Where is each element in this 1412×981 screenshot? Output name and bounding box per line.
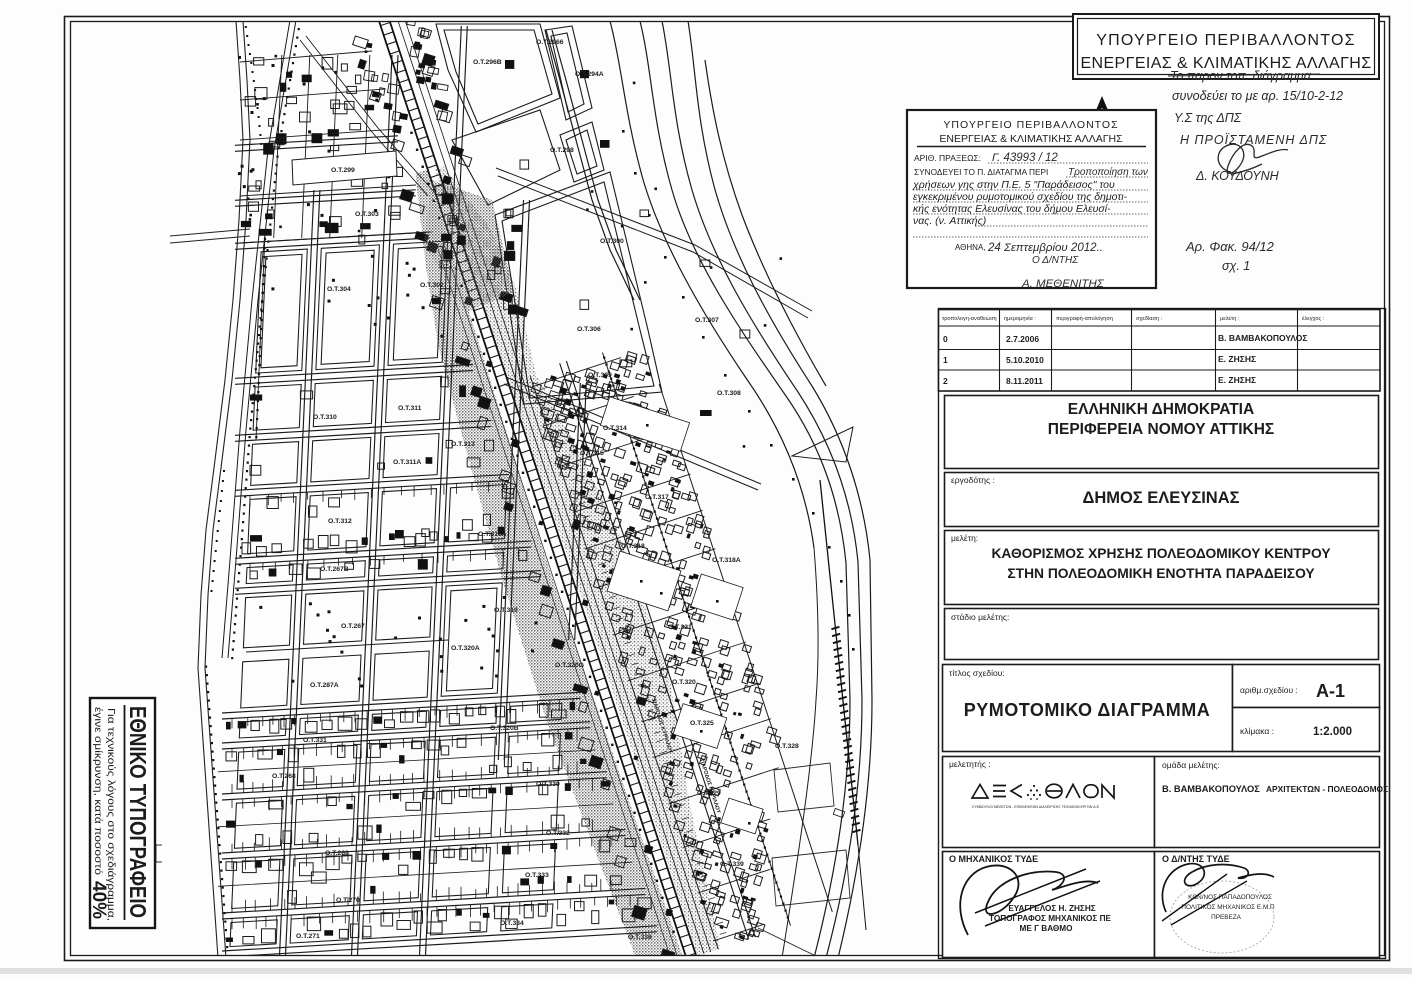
svg-text:40%: 40% [88,881,109,919]
svg-text:ΑΡΧΙΤΕΚΤΩΝ - ΠΟΛΕΟΔΟΜΟΣ: ΑΡΧΙΤΕΚΤΩΝ - ΠΟΛΕΟΔΟΜΟΣ [1266,784,1388,794]
svg-text:O.T.2966: O.T.2966 [536,39,564,46]
svg-text:O.T.318A: O.T.318A [712,557,741,564]
svg-text:Ο ΜΗΧΑΝΙΚΟΣ ΤΥΔΕ: Ο ΜΗΧΑΝΙΚΟΣ ΤΥΔΕ [949,854,1038,864]
svg-text:εγκεκριμένου ρυμοτομικού σχεδί: εγκεκριμένου ρυμοτομικού σχεδίου της δημ… [913,191,1128,203]
svg-text:Τροποποίηση των: Τροποποίηση των [1068,166,1148,178]
svg-text:αριθμ.σχεδίου :: αριθμ.σχεδίου : [1240,685,1298,695]
svg-text:O.T.308: O.T.308 [717,390,741,397]
svg-text:Α-1: Α-1 [1316,681,1345,701]
svg-text:ΠΡΕΒΕΖΑ: ΠΡΕΒΕΖΑ [1211,914,1242,921]
svg-text:O.T.333: O.T.333 [525,872,549,879]
svg-text:O.T.338: O.T.338 [628,934,652,941]
svg-text:O.T.312: O.T.312 [328,518,352,525]
svg-text:Ο Δ/ΝΤΗΣ ΤΥΔΕ: Ο Δ/ΝΤΗΣ ΤΥΔΕ [1162,854,1230,864]
svg-text:Η ΠΡΟΪΣΤΑΜΕΝΗ ΔΠΣ: Η ΠΡΟΪΣΤΑΜΕΝΗ ΔΠΣ [1180,133,1327,147]
svg-text:O.T.269: O.T.269 [325,850,349,857]
svg-text:O.T.300: O.T.300 [600,238,624,245]
svg-text:O.T.317: O.T.317 [645,494,669,501]
svg-text:O.T.315: O.T.315 [580,450,604,457]
svg-text:τροπολογη-αναθεώση: τροπολογη-αναθεώση [942,316,997,322]
svg-text:24 Σεπτεμβρίου 2012..: 24 Σεπτεμβρίου 2012.. [987,242,1103,254]
svg-text:στάδιο μελέτης:: στάδιο μελέτης: [951,612,1009,622]
svg-text:νας. (ν. Αττικής): νας. (ν. Αττικής) [913,215,986,227]
svg-text:O.T.311: O.T.311 [398,405,422,412]
svg-text:ΕΝΕΡΓΕΙΑΣ & ΚΛΙΜΑΤΙΚΗΣ ΑΛΛΑΓΗ: ΕΝΕΡΓΕΙΑΣ & ΚΛΙΜΑΤΙΚΗΣ ΑΛΛΑΓΗΣ [939,133,1123,145]
svg-text:2.7.2006: 2.7.2006 [1006,334,1039,344]
svg-text:O.T.331: O.T.331 [303,737,327,744]
svg-text:ΠΟΛΙΤΙΚΟΣ ΜΗΧΑΝΙΚΟΣ Ε.Μ.Π: ΠΟΛΙΤΙΚΟΣ ΜΗΧΑΝΙΚΟΣ Ε.Μ.Π [1181,904,1275,911]
svg-text:ΣΥΜΒΟΥΛΟΙ ΜΕΛΕΤΩΝ - ΕΠΙΒΛΕΨΕΩΝ: ΣΥΜΒΟΥΛΟΙ ΜΕΛΕΤΩΝ - ΕΠΙΒΛΕΨΕΩΝ ΔΙΑΧΕΙΡΙΣ… [972,805,1100,809]
svg-text:σχεδίαση :: σχεδίαση : [1136,316,1163,322]
svg-text:συνοδεύει το με αρ. 15/10-2-12: συνοδεύει το με αρ. 15/10-2-12 [1172,89,1343,103]
svg-text:ΕΥΑΓΓΕΛΟΣ Η. ΖΗΣΗΣ: ΕΥΑΓΓΕΛΟΣ Η. ΖΗΣΗΣ [1008,904,1095,913]
svg-text:ομάδα μελέτης:: ομάδα μελέτης: [1162,760,1220,770]
svg-text:Ε. ΖΗΣΗΣ: Ε. ΖΗΣΗΣ [1218,375,1256,385]
svg-text:ΥΠΟΥΡΓΕΙΟ ΠΕΡΙΒΑΛΛΟΝΤΟΣ: ΥΠΟΥΡΓΕΙΟ ΠΕΡΙΒΑΛΛΟΝΤΟΣ [1096,32,1355,49]
svg-text:τίτλος σχεδίου:: τίτλος σχεδίου: [949,668,1005,678]
svg-text:μελέτη:: μελέτη: [951,533,978,543]
svg-text:1: 1 [943,355,948,365]
svg-text:8.11.2011: 8.11.2011 [1006,376,1043,386]
svg-text:O.T.306: O.T.306 [577,326,601,333]
svg-text:σχ. 1: σχ. 1 [1222,259,1250,273]
svg-text:O.T.313A: O.T.313A [478,531,507,538]
svg-text:ΜΕ Γ ΒΑΘΜΟ: ΜΕ Γ ΒΑΘΜΟ [1020,924,1074,933]
svg-text:O.T.307: O.T.307 [695,317,719,324]
svg-text:έγινε σμίκρυνση, κατά ποσοστό: έγινε σμίκρυνση, κατά ποσοστό [92,707,104,875]
svg-text:O.T.299: O.T.299 [331,167,355,174]
svg-text:O.T.302: O.T.302 [420,282,444,289]
svg-text:ΚΑΘΟΡΙΣΜΟΣ ΧΡΗΣΗΣ ΠΟΛΕΟΔΟΜΙΚΟΥ: ΚΑΘΟΡΙΣΜΟΣ ΧΡΗΣΗΣ ΠΟΛΕΟΔΟΜΙΚΟΥ ΚΕΝΤΡΟΥ [991,546,1330,561]
svg-text:ΕΘΝΙΚΟ ΤΥΠΟΓΡΑΦΕΙΟ: ΕΘΝΙΚΟ ΤΥΠΟΓΡΑΦΕΙΟ [125,706,151,918]
svg-text:O.T.309: O.T.309 [588,372,612,379]
svg-text:5.10.2010: 5.10.2010 [1006,355,1044,365]
svg-text:0: 0 [943,334,948,344]
svg-text:O.T.310: O.T.310 [313,414,337,421]
svg-text:O.T.325: O.T.325 [690,720,714,727]
svg-text:O.T.321: O.T.321 [668,624,692,631]
svg-text:Υ.Σ της ΔΠΣ: Υ.Σ της ΔΠΣ [1174,111,1242,125]
svg-text:1:2.000: 1:2.000 [1313,726,1352,738]
svg-text:O.T.267: O.T.267 [341,623,365,630]
svg-text:O.T.328: O.T.328 [775,743,799,750]
svg-text:O.T.332: O.T.332 [546,830,570,837]
svg-text:μελετητής :: μελετητής : [949,759,991,769]
svg-text:Αρ. Φακ. 94/12: Αρ. Φακ. 94/12 [1185,239,1275,254]
svg-text:O.T.330: O.T.330 [536,781,560,788]
svg-text:O.T.267B: O.T.267B [320,566,349,573]
svg-text:ΤΟΠΟΓΡΑΦΟΣ ΜΗΧΑΝΙΚΟΣ ΠΕ: ΤΟΠΟΓΡΑΦΟΣ ΜΗΧΑΝΙΚΟΣ ΠΕ [989,914,1112,923]
svg-text:ΚΩΝ/ΝΟΣ ΠΑΠΑΔΟΠΟΥΛΟΣ: ΚΩΝ/ΝΟΣ ΠΑΠΑΔΟΠΟΥΛΟΣ [1188,894,1272,901]
svg-text:ΥΠΟΥΡΓΕΙΟ ΠΕΡΙΒΑΛΛΟΝΤΟΣ: ΥΠΟΥΡΓΕΙΟ ΠΕΡΙΒΑΛΛΟΝΤΟΣ [943,119,1118,131]
svg-text:O.T.298: O.T.298 [550,147,574,154]
svg-text:κλίμακα :: κλίμακα : [1240,726,1274,736]
svg-text:ΡΥΜΟΤΟΜΙΚΟ ΔΙΑΓΡΑΜΜΑ: ΡΥΜΟΤΟΜΙΚΟ ΔΙΑΓΡΑΜΜΑ [964,700,1211,720]
svg-text:O.T.320: O.T.320 [672,679,696,686]
svg-text:Δ. ΚΟΥΔΟΥΝΗ: Δ. ΚΟΥΔΟΥΝΗ [1195,169,1280,183]
svg-text:Ε. ΖΗΣΗΣ: Ε. ΖΗΣΗΣ [1218,354,1256,364]
svg-text:O.T.311A: O.T.311A [393,459,421,466]
svg-text:κής ενότητας Ελευσίνας του δ: κής ενότητας Ελευσίνας του δήμου Ελευσί- [913,203,1111,215]
svg-text:ΕΛΛΗΝΙΚΗ ΔΗΜΟΚΡΑΤΙΑ: ΕΛΛΗΝΙΚΗ ΔΗΜΟΚΡΑΤΙΑ [1068,401,1254,418]
svg-text:O.T.320B: O.T.320B [490,725,519,732]
svg-text:ΔΗΜΟΣ ΕΛΕΥΣΙΝΑΣ: ΔΗΜΟΣ ΕΛΕΥΣΙΝΑΣ [1082,489,1239,507]
svg-text:χρήσεων γης στην Π.Ε. 5 "Παράδ: χρήσεων γης στην Π.Ε. 5 "Παράδεισος" του [912,179,1115,191]
svg-text:ΣΥΝΟΔΕΥΕΙ ΤΟ Π. ΔΙΑΤΑΓΜΑ ΠΕΡΙ: ΣΥΝΟΔΕΥΕΙ ΤΟ Π. ΔΙΑΤΑΓΜΑ ΠΕΡΙ [914,167,1048,177]
svg-text:μελέτη :: μελέτη : [1220,315,1240,322]
svg-text:O.T.287A: O.T.287A [310,682,339,689]
svg-text:O.T.318: O.T.318 [621,543,645,550]
svg-text:O.T.303: O.T.303 [355,211,379,218]
svg-text:Γ. 43993 / 12: Γ. 43993 / 12 [992,152,1058,164]
svg-text:O.T.296B: O.T.296B [473,59,502,66]
svg-text:εργοδότης :: εργοδότης : [951,475,995,485]
svg-text:ΑΘΗΝΑ,: ΑΘΗΝΑ, [955,243,986,252]
svg-text:O.T.319: O.T.319 [494,607,518,614]
svg-text:O.T.268: O.T.268 [272,773,296,780]
svg-text:ΠΕΡΙΦΕΡΕΙΑ ΝΟΜΟΥ ΑΤΤΙΚΗΣ: ΠΕΡΙΦΕΡΕΙΑ ΝΟΜΟΥ ΑΤΤΙΚΗΣ [1048,421,1274,438]
svg-text:ΣΤΗΝ ΠΟΛΕΟΔΟΜΙΚΗ ΕΝΟΤΗΤΑ ΠΑΡΑΔ: ΣΤΗΝ ΠΟΛΕΟΔΟΜΙΚΗ ΕΝΟΤΗΤΑ ΠΑΡΑΔΕΙΣΟΥ [1007,566,1314,581]
svg-text:Α. ΜΕΘΕΝΙΤΗΣ: Α. ΜΕΘΕΝΙΤΗΣ [1021,278,1105,290]
svg-text:O.T.270: O.T.270 [336,897,360,904]
svg-text:ημερομηνία :: ημερομηνία : [1004,316,1036,322]
svg-text:Β. ΒΑΜΒΑΚΟΠΟΥΛΟΣ: Β. ΒΑΜΒΑΚΟΠΟΥΛΟΣ [1218,333,1307,343]
svg-text:περιγραφή-απολόγηση: περιγραφή-απολόγηση [1056,315,1113,322]
svg-text:O.T.339: O.T.339 [720,861,744,868]
svg-text:O.T.313: O.T.313 [451,441,475,448]
svg-text:O.T.320G: O.T.320G [555,662,584,669]
svg-text:Β. ΒΑΜΒΑΚΟΠΟΥΛΟΣ: Β. ΒΑΜΒΑΚΟΠΟΥΛΟΣ [1162,784,1260,794]
svg-text:O.T.320A: O.T.320A [451,645,480,652]
svg-text:έλεγχος :: έλεγχος : [1302,315,1325,322]
svg-text:2: 2 [943,376,948,386]
svg-text:Ο Δ/ΝΤΗΣ: Ο Δ/ΝΤΗΣ [1032,255,1079,266]
svg-text:O.T.271: O.T.271 [296,933,320,940]
svg-text:ΑΡΙΘ. ΠΡΑΞΕΩΣ:: ΑΡΙΘ. ΠΡΑΞΕΩΣ: [914,153,981,163]
svg-text:O.T.334: O.T.334 [500,920,524,927]
svg-text:O.T.294A: O.T.294A [575,71,604,78]
svg-text:O.T.304: O.T.304 [327,286,351,293]
svg-text:O.T.314: O.T.314 [603,425,627,432]
